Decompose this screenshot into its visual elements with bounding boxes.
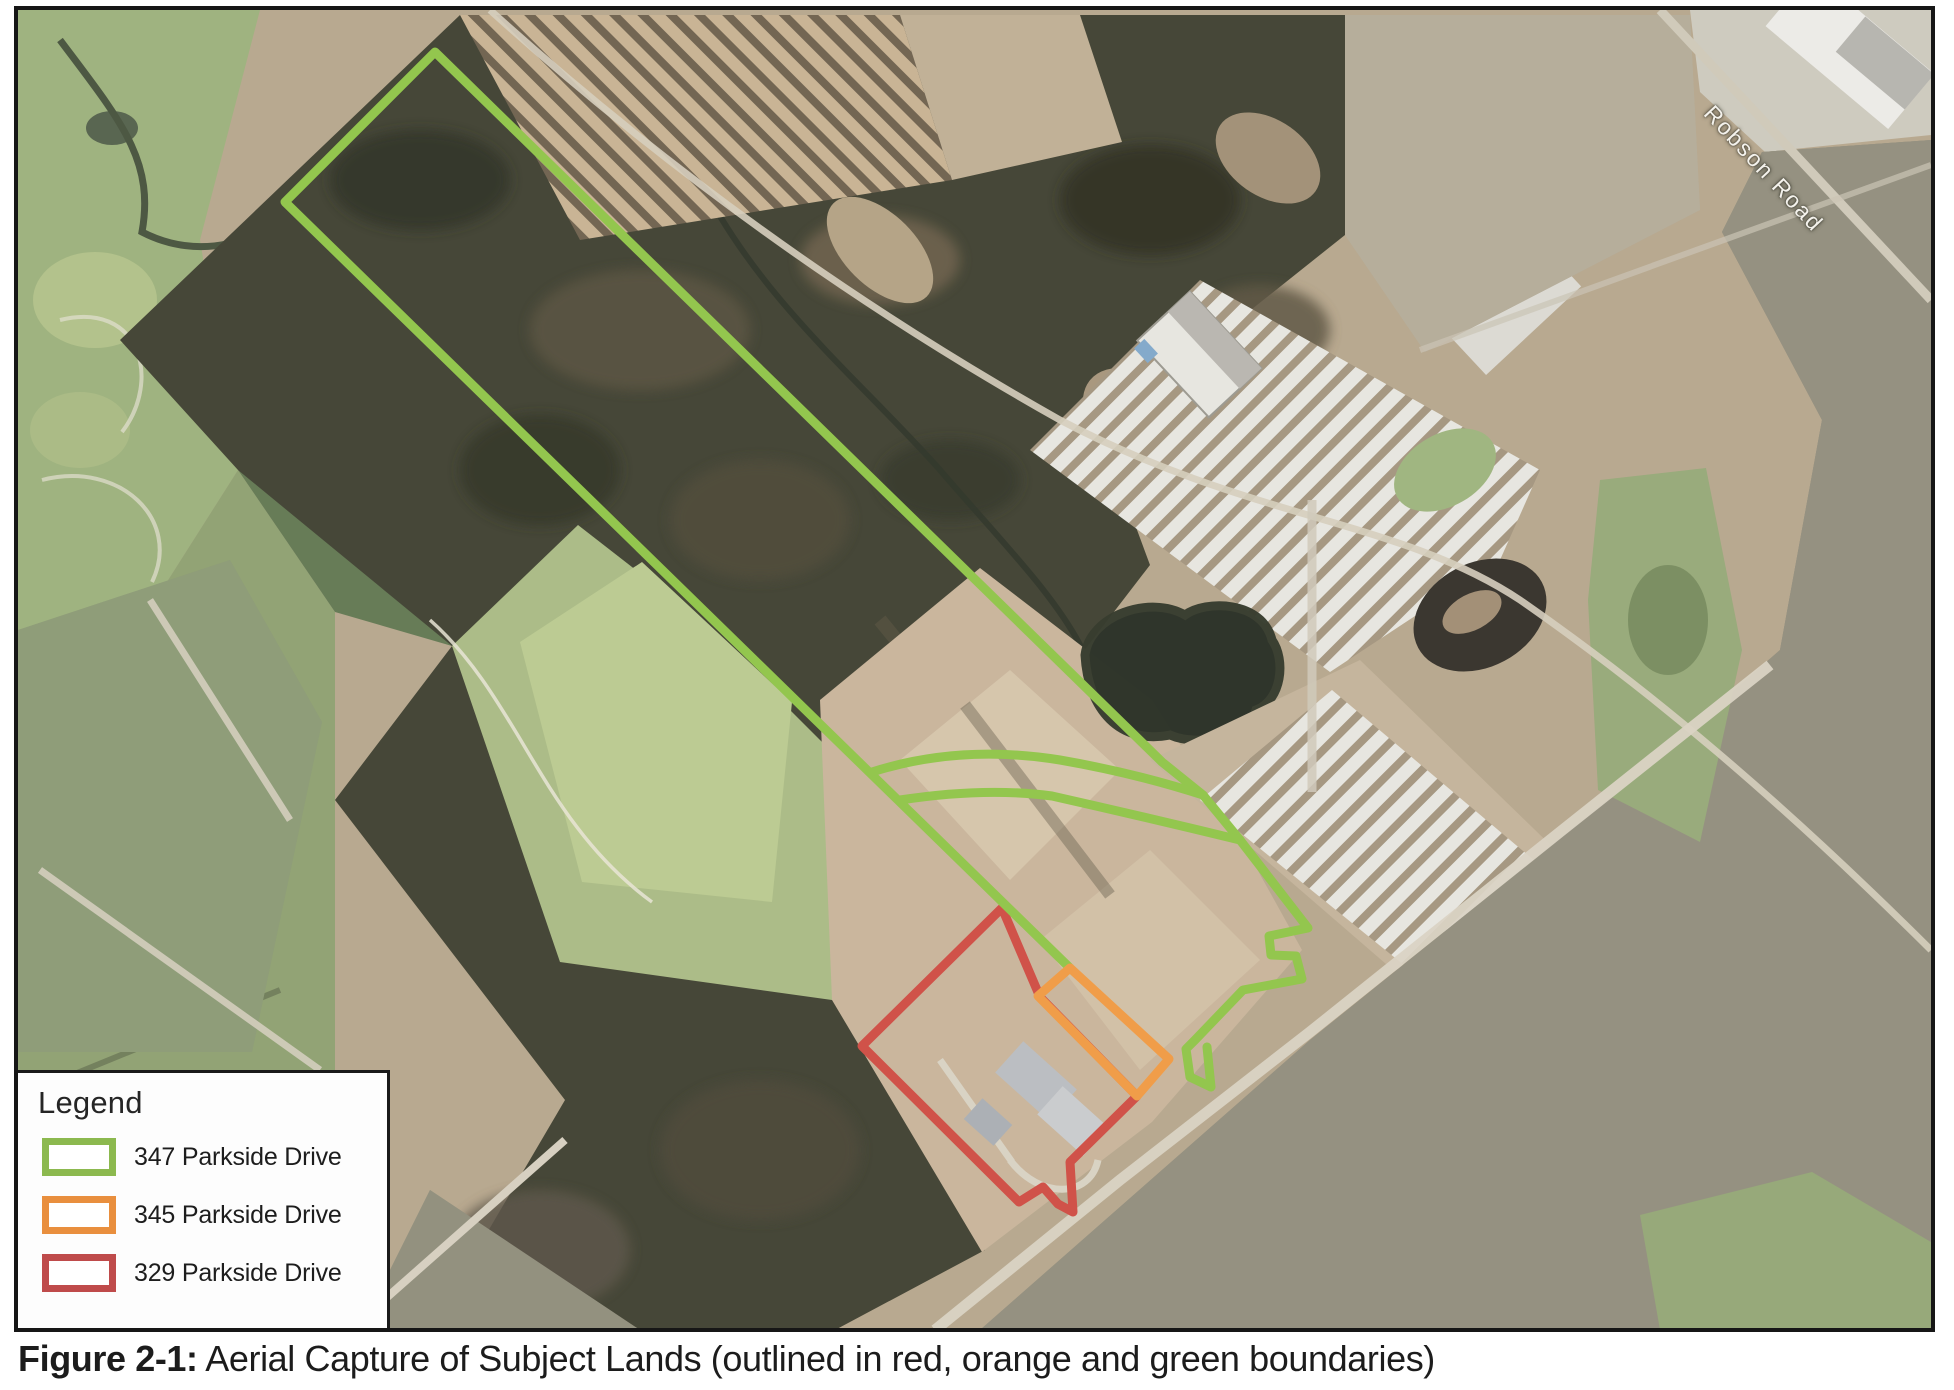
- aerial-map: Robson Road Legend 347 Parkside Drive 34…: [14, 6, 1935, 1332]
- red-boundary-swatch: [42, 1254, 116, 1292]
- legend-label-345: 345 Parkside Drive: [134, 1201, 342, 1230]
- legend-item-329: 329 Parkside Drive: [42, 1251, 387, 1295]
- legend: Legend 347 Parkside Drive 345 Parkside D…: [18, 1070, 390, 1328]
- figure-number: Figure 2-1:: [18, 1338, 198, 1379]
- legend-label-347: 347 Parkside Drive: [134, 1143, 342, 1172]
- orange-boundary-swatch: [42, 1196, 116, 1234]
- legend-item-347: 347 Parkside Drive: [42, 1135, 387, 1179]
- legend-item-345: 345 Parkside Drive: [42, 1193, 387, 1237]
- legend-title: Legend: [38, 1085, 387, 1121]
- figure-caption-text: Aerial Capture of Subject Lands (outline…: [198, 1338, 1435, 1379]
- legend-label-329: 329 Parkside Drive: [134, 1259, 342, 1288]
- figure-caption: Figure 2-1: Aerial Capture of Subject La…: [18, 1338, 1938, 1380]
- green-boundary-swatch: [42, 1138, 116, 1176]
